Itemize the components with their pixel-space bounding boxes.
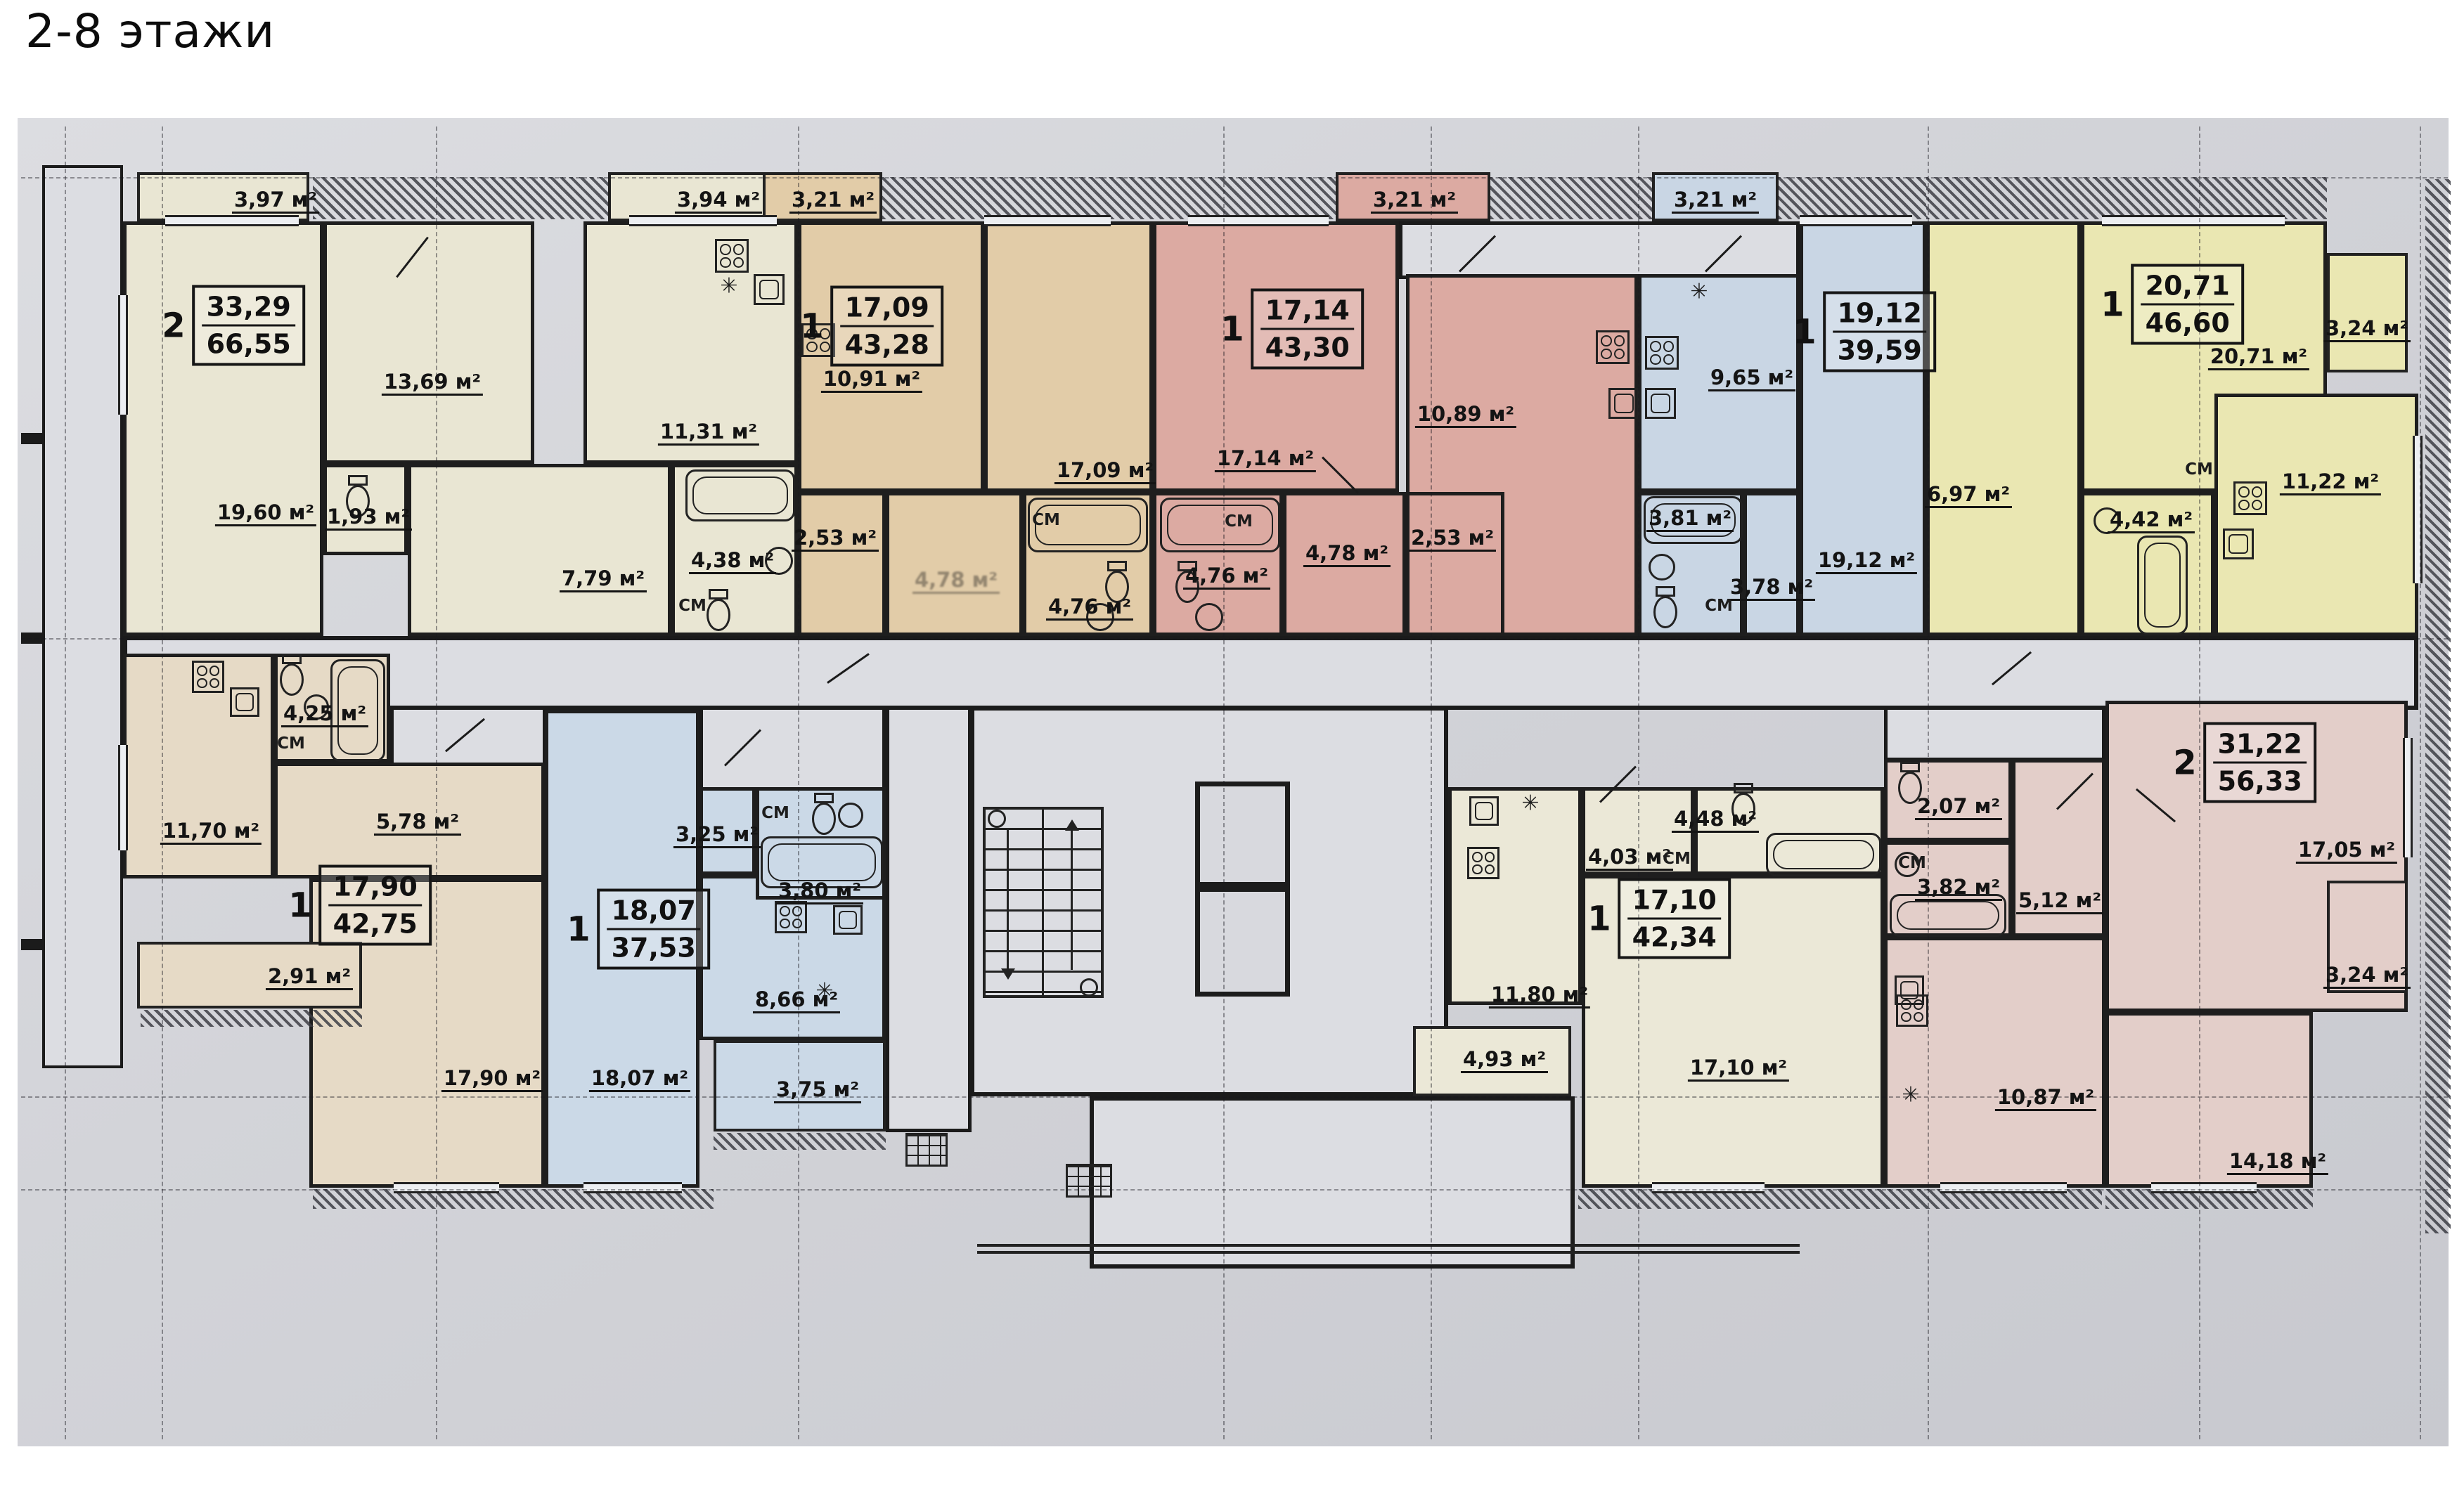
room-area-label: 13,69 м² [382,372,483,396]
left-gallery [42,165,123,1068]
vent-mark-icon: ✳ [720,274,737,299]
room-area-label: 11,70 м² [160,821,262,845]
room-area-label: 4,42 м² [2108,510,2195,533]
room-area-label: 9,65 м² [1708,368,1795,391]
room-area-label: 4,78 м² [912,570,1000,594]
closet-label: СМ [2185,460,2213,479]
toilet-icon [280,663,304,696]
room-area-label: 3,25 м² [673,824,761,848]
room-area-label: 17,14 м² [1215,448,1316,472]
apt-summary-1: 1 17,09 43,28 [800,286,943,367]
room-area-label: 7,79 м² [560,569,647,592]
entrance-lobby [1090,1096,1575,1269]
apt-summary-8: 1 17,10 42,34 [1587,878,1731,959]
apt-summary-7: 1 18,07 37,53 [567,889,710,970]
corridor-upper [123,636,2418,710]
balcony-area-label: 3,21 м² [1371,190,1458,214]
room-area-label: 18,07 м² [589,1068,690,1092]
vent-mark-icon: ✳ [1690,280,1708,304]
apt-summary-4: 1 20,71 46,60 [2101,264,2244,345]
apt-summary-0: 2 33,29 66,55 [162,285,305,366]
room-area-label: 11,31 м² [658,422,759,446]
room-area-label: 3,81 м² [1646,508,1734,532]
balcony-area-label: 3,75 м² [774,1079,861,1103]
closet-label: СМ [277,734,305,753]
kitchen-sink-icon [1608,388,1639,419]
balcony-area-label: 3,21 м² [1672,190,1759,214]
room-area-label: 10,87 м² [1995,1087,2096,1111]
room-area-label: 5,12 м² [2016,890,2103,914]
apt-summary-3: 1 19,12 39,59 [1793,292,1936,372]
bathtub-icon [1160,498,1280,552]
apt0-living [123,221,323,636]
living-area: 31,22 [2214,729,2307,764]
living-area: 17,14 [1261,295,1354,330]
corridor-niche-g [390,706,546,766]
room-area-label: 4,25 м² [281,703,368,727]
toilet-icon [812,803,836,835]
balcony-area-label: 2,91 м² [266,966,353,990]
closet-label: СМ [1705,597,1733,615]
kitchen-sink-icon [1645,388,1676,419]
living-area: 17,10 [1628,885,1721,920]
room-area-label: 17,09 м² [1054,460,1156,484]
toilet-icon [1653,596,1677,628]
apt1-closet [798,492,886,636]
total-area: 37,53 [607,930,700,964]
kitchen-sink-icon [1469,796,1499,826]
total-area: 46,60 [2141,306,2234,339]
balcony-area-label: 3,97 м² [232,190,319,214]
stove-icon [715,239,749,273]
room-area-label: 4,78 м² [1303,543,1391,567]
apt2-closet [1406,492,1504,636]
room-area-label: 19,60 м² [215,502,316,526]
total-area: 56,33 [2214,764,2307,797]
apt-summary-2: 1 17,14 43,30 [1220,289,1364,370]
rooms-count: 1 [288,886,311,925]
room-area-label: 20,71 м² [2208,346,2309,370]
elevator-shaft-2 [1195,887,1290,997]
closet-label: СМ [1032,511,1060,529]
rooms-count: 1 [1793,312,1816,351]
living-area: 33,29 [202,292,295,327]
stove-icon [1896,994,1928,1027]
balcony-area-label: 3,24 м² [2323,318,2411,342]
room-area-label: 10,89 м² [1415,404,1516,428]
room-area-label: 17,10 м² [1688,1058,1789,1082]
apt-summary-5: 2 31,22 56,33 [2173,722,2316,803]
room-area-label: 4,03 м² [1586,847,1673,871]
kitchen-sink-icon [754,274,785,305]
apt0-bedroom [323,221,534,464]
total-area: 42,75 [329,907,422,940]
room-area-label: 11,80 м² [1489,985,1590,1009]
apt0-hall [408,464,671,636]
room-area-label: 4,76 м² [1046,597,1133,621]
stove-icon [1467,847,1499,879]
vent-shaft [905,1133,948,1167]
room-area-label: 3,80 м² [776,881,863,904]
closet-label: СМ [1663,850,1691,868]
bathtub-icon [1766,833,1881,876]
living-area: 19,12 [1833,298,1926,333]
toilet-icon [707,599,730,631]
rooms-count: 1 [800,306,823,346]
living-area: 17,90 [329,871,422,907]
closet-label: СМ [678,597,707,615]
floor-plan: 2-8 этажи [0,0,2464,1485]
living-area: 17,09 [841,292,934,328]
apt5-kitchen [1884,937,2105,1188]
stove-icon [192,661,224,693]
room-area-label: 2,53 м² [1409,528,1496,552]
room-area-label: 19,12 м² [1816,550,1917,574]
balcony-area-label: 4,93 м² [1461,1049,1548,1073]
total-area: 43,30 [1261,330,1354,363]
bathtub-icon [2137,536,2188,635]
apt4-balcony [2327,253,2408,372]
vent-mark-icon: ✳ [1902,1083,1919,1108]
kitchen-sink-icon [2223,528,2254,559]
room-area-label: 3,82 м² [1915,877,2002,901]
ap t-summary-6: 1 17,90 42,75 [288,865,432,946]
room-area-label: 3,78 м² [1728,577,1815,601]
room-area-label: 2,53 м² [792,528,879,552]
closet-label: СМ [1898,854,1926,872]
vent-mark-icon: ✳ [815,979,833,1004]
stove-icon [2233,481,2267,515]
room-area-label: 5,78 м² [374,812,461,836]
total-area: 42,34 [1628,920,1721,953]
rooms-count: 1 [2101,285,2124,324]
sink-icon [838,803,863,828]
balcony-area-label: 3,94 м² [675,190,762,214]
room-area-label: 10,91 м² [821,369,922,393]
room-area-label: 17,05 м² [2296,840,2397,864]
total-area: 43,28 [841,328,934,361]
room-area-label: 4,38 м² [689,550,776,574]
room-area-label: 1,93 м² [325,507,412,531]
apt8-kitchen [1448,787,1582,1005]
balcony-area-label: 3,21 м² [789,190,877,214]
rooms-count: 1 [567,909,590,949]
rooms-count: 2 [162,306,185,345]
apt3-hall [1743,492,1800,636]
living-area: 20,71 [2141,271,2234,306]
entrance-steps [1066,1164,1112,1198]
corridor-niche-h [699,706,886,791]
rooms-count: 1 [1220,309,1244,349]
sink-icon [1649,554,1675,581]
sink-icon [1195,603,1223,631]
page-title: 2-8 этажи [25,4,275,58]
total-area: 39,59 [1833,333,1926,366]
bathtub-icon [685,469,795,521]
room-area-label: 11,22 м² [2280,472,2381,495]
apt4-hall [1926,221,2081,636]
vent-mark-icon: ✳ [1521,791,1539,816]
balcony-area-label: 3,24 м² [2323,965,2411,989]
stove-icon [775,901,807,933]
room-area-label: 4,48 м² [1672,809,1759,833]
room-area-label: 4,76 м² [1183,566,1270,590]
kitchen-sink-icon [833,905,863,935]
apt1-hall [886,492,1023,636]
closet-label: СМ [761,804,789,822]
room-area-label: 14,18 м² [2227,1151,2328,1175]
apt1-living [984,221,1153,492]
total-area: 66,55 [202,327,295,360]
kitchen-sink-icon [230,687,259,717]
rooms-count: 1 [1587,899,1611,938]
elevator-shaft-1 [1195,782,1290,887]
stove-icon [1596,330,1630,364]
room-area-label: 6,97 м² [1925,484,2012,508]
rooms-count: 2 [2173,743,2196,782]
entrance-ramp [977,1244,1800,1254]
shaft-strip [886,706,972,1132]
living-area: 18,07 [607,895,700,930]
room-area-label: 2,07 м² [1915,796,2002,820]
room-area-label: 17,90 м² [441,1068,543,1092]
stove-icon [1645,336,1679,370]
corridor-niche-f [1884,706,2105,761]
closet-label: СМ [1225,512,1253,531]
